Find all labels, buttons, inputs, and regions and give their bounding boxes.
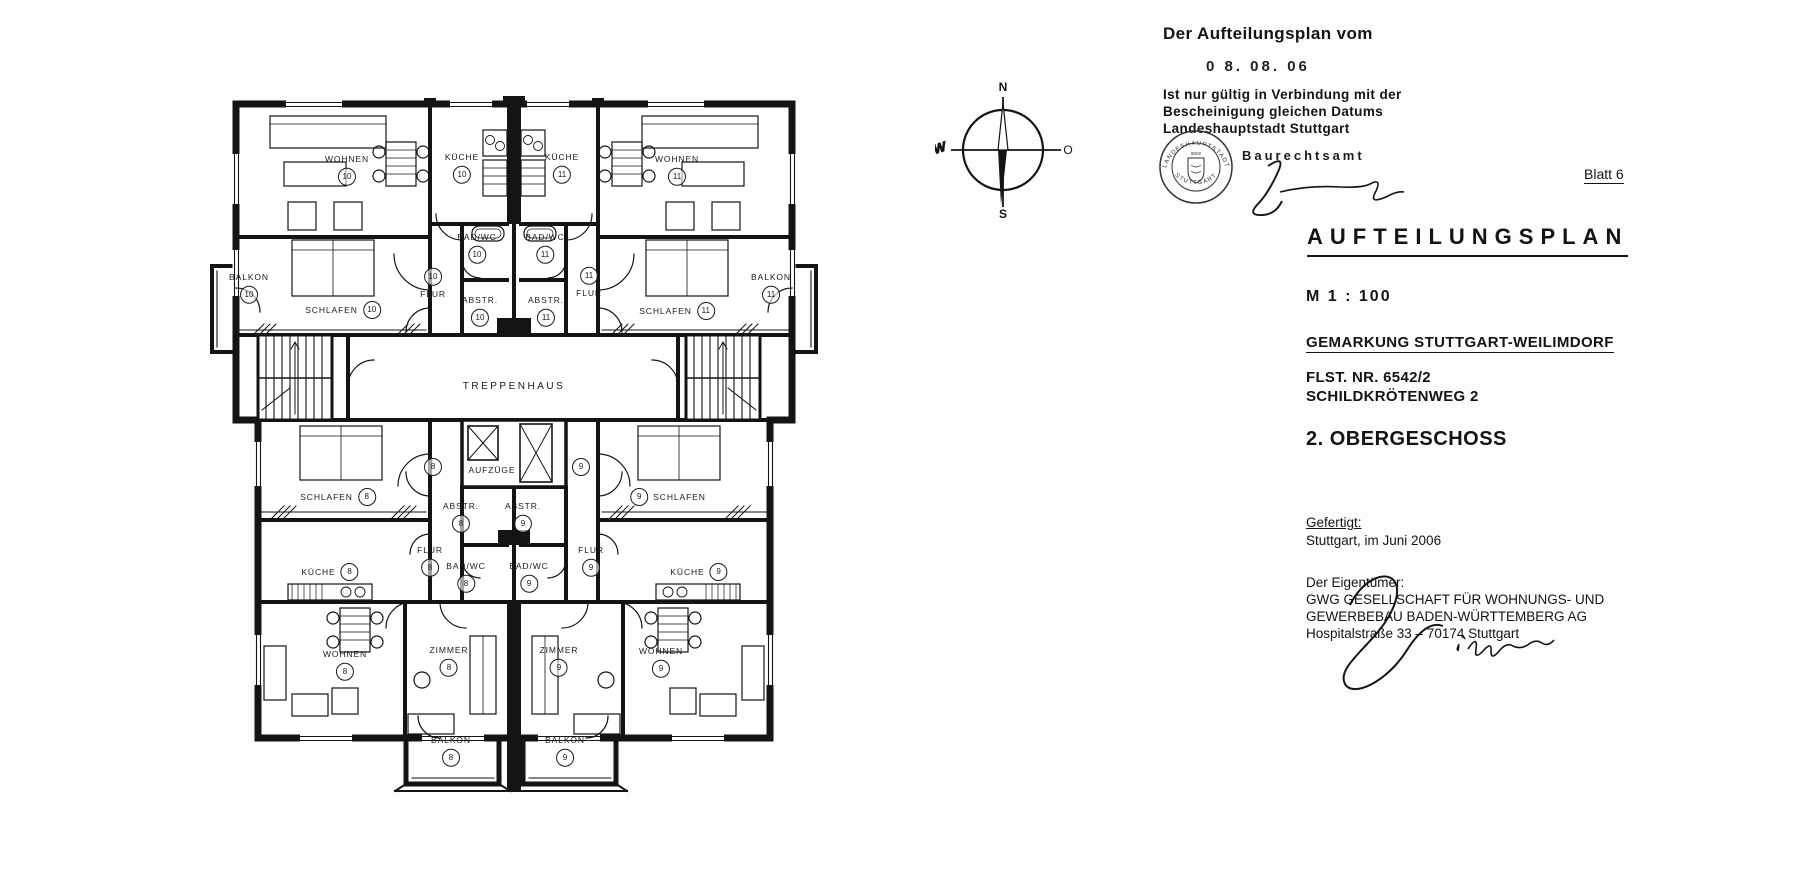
room-label-badwc-8: BAD/WC8	[446, 562, 485, 593]
room-label-zimmer-9: ZIMMER9	[540, 646, 579, 677]
staircase-left	[258, 335, 332, 420]
room-label-abstr-11: ABSTR.11	[528, 296, 564, 327]
seal-number: 6502	[1191, 151, 1202, 156]
unit-badge: 9	[652, 659, 670, 677]
loose-unit-badge-9: 9	[572, 458, 590, 476]
room-label-balkon-11: BALKON11	[751, 273, 791, 304]
unit-badge: 9	[710, 563, 728, 581]
unit-badge: 11	[697, 302, 715, 320]
room-label-flur-10: FLUR10	[420, 268, 446, 299]
unit-badge: 11	[668, 167, 686, 185]
unit-badge: 8	[457, 574, 475, 592]
unit-badge: 8	[421, 558, 439, 576]
unit-badge: 11	[536, 245, 554, 263]
owner-signature	[1295, 560, 1605, 710]
room-label-schlafen-10: SCHLAFEN10	[305, 301, 381, 319]
room-label-kueche-8: KÜCHE8	[301, 563, 358, 581]
unit-badge: 10	[338, 167, 356, 185]
compass-east-label: O	[1063, 143, 1072, 157]
unit-badge: 11	[762, 285, 780, 303]
room-label-balkon-8: BALKON8	[431, 736, 471, 767]
unit-badge: 9	[582, 558, 600, 576]
unit-badge: 8	[358, 488, 376, 506]
compass-west-label: W	[935, 138, 949, 157]
room-label-flur-9: FLUR9	[578, 546, 604, 577]
svg-text:STUTTGART: STUTTGART	[1173, 173, 1218, 187]
room-label-flur-11: FLUR11	[576, 267, 602, 298]
official-signature	[1238, 150, 1438, 235]
unit-badge: 9	[556, 748, 574, 766]
approval-date-stamp: 0 8. 08. 06	[1206, 58, 1310, 75]
floor-title: 2. OBERGESCHOSS	[1306, 428, 1507, 451]
prepared-value: Stuttgart, im Juni 2006	[1306, 532, 1441, 549]
room-label-schlafen-9: SCHLAFEN9	[630, 488, 706, 506]
seal-bottom-text: STUTTGART	[1173, 173, 1218, 187]
room-label-aufzuege: AUFZÜGE	[469, 466, 516, 475]
unit-badge: 9	[520, 574, 538, 592]
room-label-wohnen-9: WOHNEN9	[639, 647, 683, 678]
sheet-number: Blatt 6	[1584, 166, 1624, 184]
room-label-wohnen-11: WOHNEN11	[655, 155, 699, 186]
room-label-balkon-9: BALKON9	[545, 736, 585, 767]
unit-badge: 10	[424, 268, 442, 286]
room-label-zimmer-8: ZIMMER8	[430, 646, 469, 677]
compass-rose: N O S W	[935, 55, 1075, 220]
room-label-kueche-10: KÜCHE10	[445, 153, 479, 184]
unit-badge: 8	[341, 563, 359, 581]
parcel-and-street: FLST. NR. 6542/2 SCHILDKRÖTENWEG 2	[1306, 368, 1479, 406]
room-label-abstr-10: ABSTR.10	[462, 296, 498, 327]
room-label-badwc-9: BAD/WC9	[509, 562, 548, 593]
room-label-schlafen-8: SCHLAFEN8	[300, 488, 376, 506]
unit-badge: 10	[363, 301, 381, 319]
room-label-badwc-10: BAD/WC10	[457, 233, 496, 264]
loose-unit-badge-8: 8	[424, 458, 442, 476]
floor-plan-drawing	[200, 90, 820, 800]
unit-badge: 11	[553, 165, 571, 183]
compass-south-label: S	[999, 207, 1007, 220]
unit-badge: 10	[468, 245, 486, 263]
room-label-kueche-9: KÜCHE9	[670, 563, 727, 581]
approval-heading: Der Aufteilungsplan vom	[1163, 24, 1373, 44]
city-seal: LANDESHAUPTSTADT STUTTGART 6502	[1150, 120, 1250, 212]
district-label: GEMARKUNG STUTTGART-WEILIMDORF	[1306, 334, 1614, 353]
unit-badge: 11	[580, 267, 598, 285]
unit-badge: 10	[453, 165, 471, 183]
stairwell-room	[348, 335, 678, 420]
seal-shield-icon	[1188, 158, 1204, 183]
room-label-wohnen-8: WOHNEN8	[323, 650, 367, 681]
room-label-flur-8: FLUR8	[417, 546, 443, 577]
unit-badge: 10	[471, 308, 489, 326]
room-label-kueche-11: KÜCHE11	[545, 153, 579, 184]
unit-badge: 10	[240, 285, 258, 303]
scale-label: M 1 : 100	[1306, 288, 1392, 306]
scanned-plan-sheet: { "compass": {"north": "N", "east": "O",…	[0, 0, 1800, 872]
unit-badge: 9	[550, 658, 568, 676]
unit-badge: 8	[452, 514, 470, 532]
unit-badge: 11	[537, 308, 555, 326]
room-label-treppenhaus: TREPPENHAUS	[463, 382, 566, 392]
room-label-schlafen-11: SCHLAFEN11	[639, 302, 715, 320]
unit-badge: 8	[336, 662, 354, 680]
unit-badge: 8	[442, 748, 460, 766]
room-label-abstr-9: ABSTR.9	[505, 502, 541, 533]
unit-badge: 9	[630, 488, 648, 506]
document-title: AUFTEILUNGSPLAN	[1307, 224, 1628, 257]
compass-north-label: N	[999, 80, 1008, 94]
unit-badge: 9	[514, 514, 532, 532]
staircase-right	[686, 335, 760, 420]
prepared-label: Gefertigt:	[1306, 514, 1362, 531]
room-label-wohnen-10: WOHNEN10	[325, 155, 369, 186]
room-label-abstr-8: ABSTR.8	[443, 502, 479, 533]
room-label-balkon-10: BALKON10	[229, 273, 269, 304]
room-label-badwc-11: BAD/WC11	[525, 233, 564, 264]
elevator-shaft	[462, 420, 566, 487]
unit-badge: 8	[440, 658, 458, 676]
